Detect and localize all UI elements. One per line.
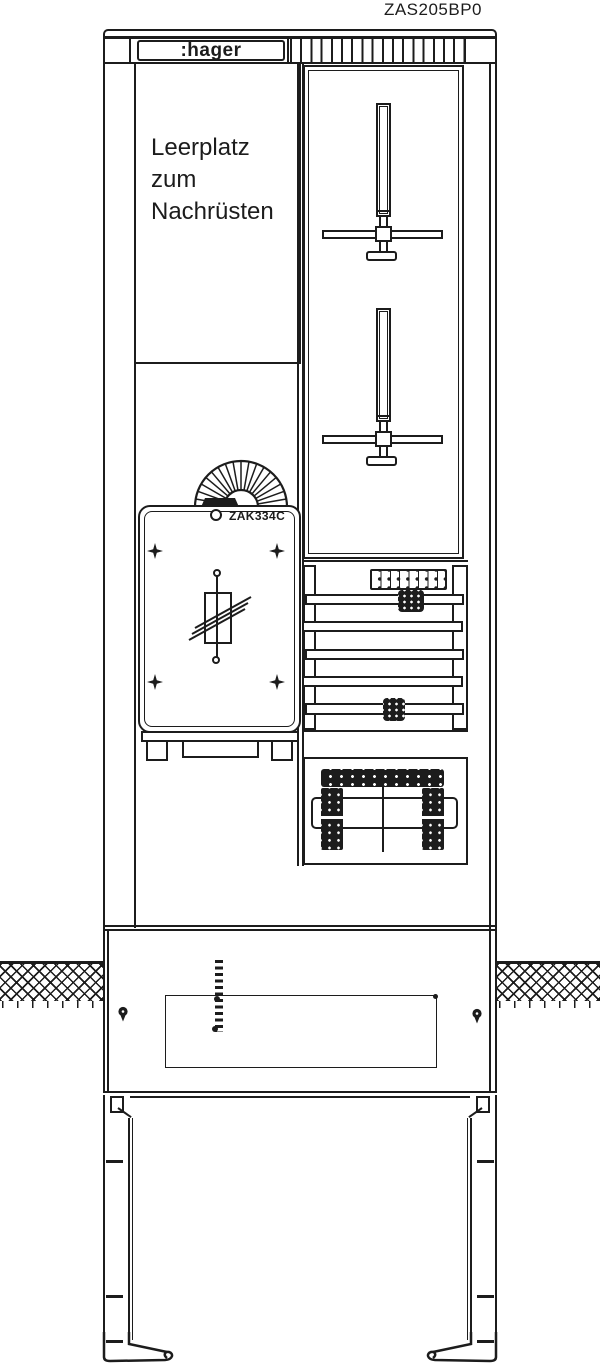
hanger-vertical-bar-inner [379, 106, 388, 214]
hanger-foot [366, 251, 397, 261]
ventilation-ribs [290, 37, 464, 64]
terminal-block-split [422, 816, 444, 819]
base-cover-plate [165, 995, 437, 1068]
ground-hatch-left [0, 961, 103, 1001]
empty-space-label-line1: Leerplatz [151, 132, 274, 164]
hanger-hub [375, 226, 392, 242]
rail-section-top-line [303, 560, 468, 562]
keyhole-screw-right [471, 1008, 483, 1024]
leg-left-tick-2 [106, 1295, 123, 1298]
hanger-foot [366, 456, 397, 466]
dashed-line-dot-upper [214, 996, 220, 1002]
screw-icon [269, 674, 285, 690]
din-rail-4 [302, 676, 463, 687]
conduit-gland-circle [210, 509, 222, 521]
terminal-block-right [422, 788, 444, 850]
device-base-recess [182, 740, 259, 758]
frame-inner-right-line [489, 63, 491, 1093]
ground-ticks-right [499, 1001, 600, 1008]
keyhole-screw-left [117, 1006, 129, 1022]
terminal-block-split [321, 816, 343, 819]
leg-left-tick-1 [106, 1160, 123, 1163]
foot-left [101, 1332, 181, 1364]
connector-block-upper [398, 590, 424, 612]
leg-right-inner2 [467, 1118, 468, 1340]
main-terminal-strip [321, 769, 444, 787]
leg-right-inner [470, 1118, 472, 1344]
fuse-terminal-top [213, 569, 221, 577]
din-rail-3 [305, 649, 464, 660]
leg-left-inner [128, 1118, 130, 1344]
brand-logo: :hager [180, 40, 241, 62]
base-inner-left-line [107, 931, 109, 1092]
header-divider-left [129, 37, 131, 64]
terminal-block-left [321, 788, 343, 850]
device-foot-right [271, 740, 293, 761]
empty-space-label: Leerplatz zum Nachrüsten [151, 132, 274, 228]
header-divider-right [287, 37, 289, 64]
ground-section-divider-upper [103, 925, 497, 927]
din-rail-1 [305, 594, 464, 605]
between-legs-line [130, 1096, 470, 1098]
ground-ticks-left [2, 1001, 103, 1008]
foot-right [419, 1332, 499, 1364]
hanger-joint-line [378, 210, 389, 212]
ground-section-divider-lower [103, 929, 497, 931]
leg-left-outer [103, 1095, 105, 1358]
base-bottom-line [103, 1091, 497, 1093]
surge-device-label: ZAK334C [229, 509, 285, 523]
header-divider-end [464, 37, 466, 64]
screw-icon [147, 674, 163, 690]
empty-space-label-line2: zum [151, 164, 274, 196]
screw-icon [147, 543, 163, 559]
terminal-center-line [382, 786, 384, 852]
center-divider-outer-line [297, 63, 299, 866]
leg-left-inner2 [132, 1118, 133, 1340]
corrugated-conduit [193, 457, 289, 509]
fuse-strike-lines [188, 596, 252, 642]
rail-section-bottom-line [303, 730, 468, 732]
hanger-hub [375, 431, 392, 447]
device-foot-left [146, 740, 168, 761]
technical-drawing-meter-column: ZAS205BP0 :hager Leerplatz zum Nachrüste… [0, 0, 600, 1366]
screw-icon [269, 543, 285, 559]
leg-right-tick-2 [477, 1295, 494, 1298]
product-code-label: ZAS205BP0 [300, 0, 482, 20]
connector-block-lower [383, 698, 405, 721]
terminal-strip-top [370, 569, 447, 590]
cabinet-left-wall [103, 36, 105, 1093]
leg-right-tick-1 [477, 1160, 494, 1163]
cover-corner-dot [433, 994, 438, 999]
ground-hatch-right [497, 961, 600, 1001]
dashed-line-dot-lower [212, 1026, 218, 1032]
brand-plate: :hager [137, 40, 285, 61]
fuse-terminal-bottom [212, 656, 220, 664]
empty-space-label-line3: Nachrüsten [151, 196, 274, 228]
din-rail-2 [302, 621, 463, 632]
leg-right-outer [495, 1095, 497, 1358]
hanger-joint-line [378, 415, 389, 417]
hanger-vertical-bar-inner [379, 311, 388, 419]
cabinet-right-wall [495, 36, 497, 1093]
